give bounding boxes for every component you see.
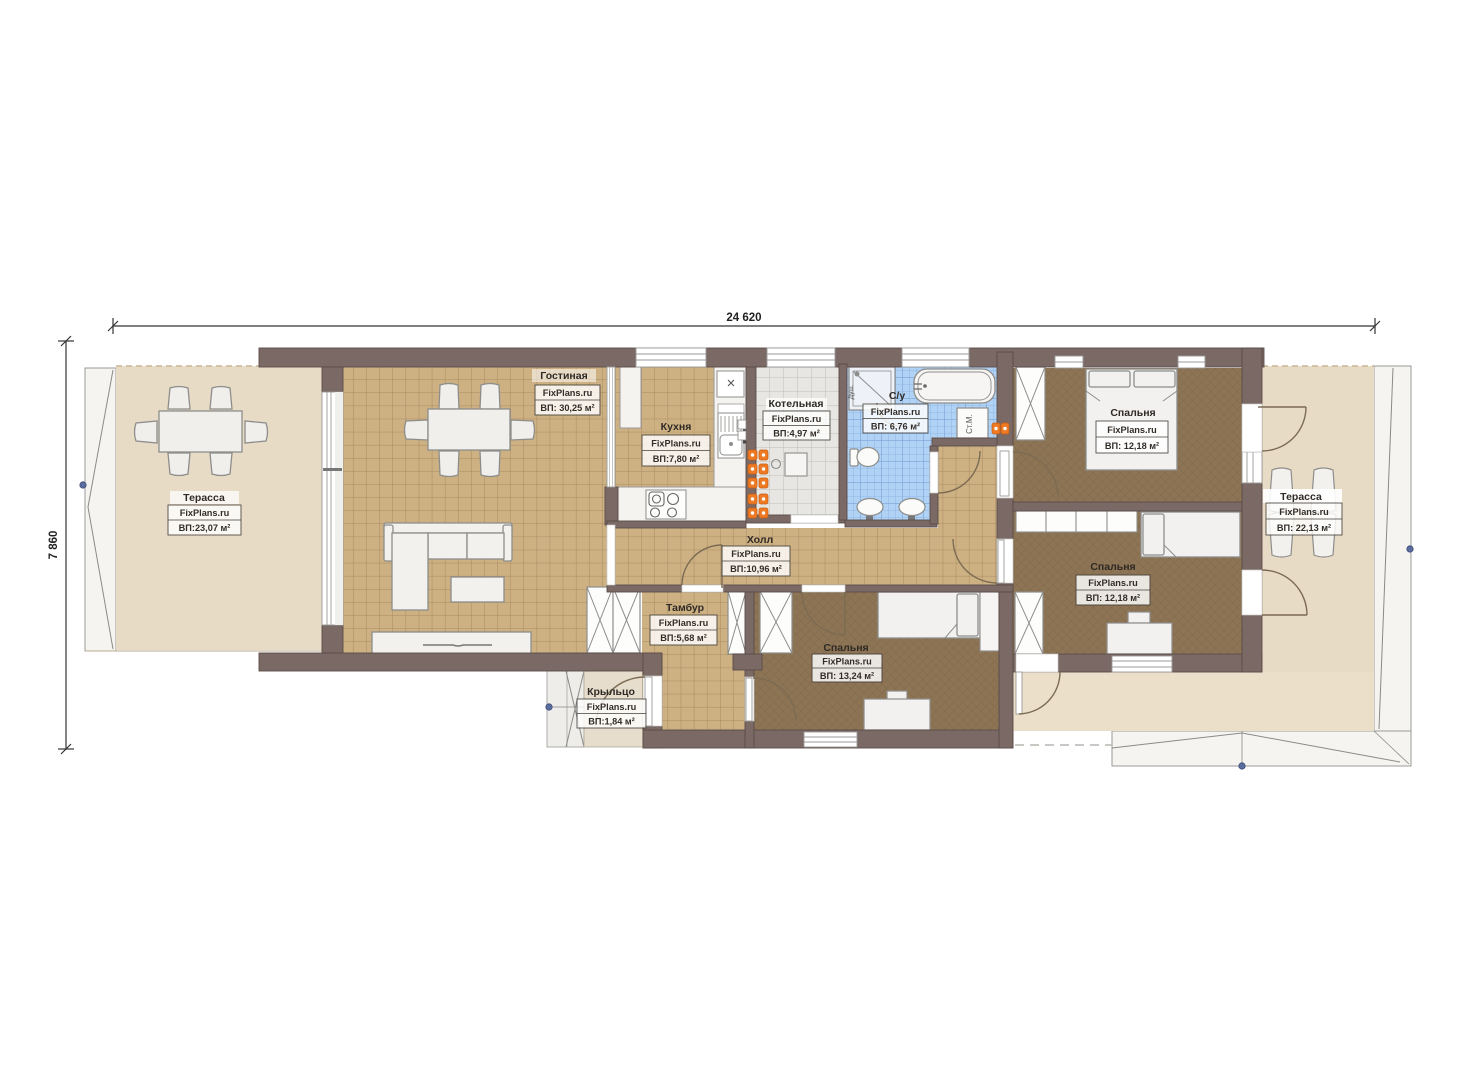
svg-text:FixPlans.ru: FixPlans.ru	[180, 508, 230, 518]
svg-text:Тамбур: Тамбур	[666, 602, 704, 614]
svg-text:ВП:10,96 м²: ВП:10,96 м²	[730, 564, 782, 574]
svg-text:ВП:7,80 м²: ВП:7,80 м²	[653, 454, 700, 464]
svg-text:Кухня: Кухня	[661, 421, 692, 433]
svg-text:Холл: Холл	[747, 534, 773, 546]
svg-text:Ст.М.: Ст.М.	[965, 414, 974, 434]
svg-text:FixPlans.ru: FixPlans.ru	[871, 407, 921, 417]
svg-text:Терасса: Терасса	[183, 492, 225, 504]
svg-text:ВП:23,07 м²: ВП:23,07 м²	[179, 523, 231, 533]
svg-text:Котельная: Котельная	[769, 398, 824, 410]
svg-text:Спальня: Спальня	[1110, 407, 1155, 419]
svg-text:7 860: 7 860	[48, 531, 60, 560]
svg-text:FixPlans.ru: FixPlans.ru	[772, 414, 822, 424]
svg-text:Терасса: Терасса	[1280, 491, 1322, 503]
svg-text:FixPlans.ru: FixPlans.ru	[1088, 578, 1138, 588]
svg-text:ВП: 6,76 м²: ВП: 6,76 м²	[871, 422, 920, 432]
svg-text:Душ.: Душ.	[848, 384, 855, 399]
svg-text:FixPlans.ru: FixPlans.ru	[731, 549, 781, 559]
svg-text:Спальня: Спальня	[1090, 561, 1135, 573]
svg-text:ВП: 30,25 м²: ВП: 30,25 м²	[540, 403, 594, 413]
svg-text:FixPlans.ru: FixPlans.ru	[543, 388, 593, 398]
svg-text:ВП:1,84 м²: ВП:1,84 м²	[588, 717, 635, 727]
svg-text:FixPlans.ru: FixPlans.ru	[651, 439, 701, 449]
svg-text:ВП: 12,18 м²: ВП: 12,18 м²	[1105, 441, 1159, 451]
svg-text:FixPlans.ru: FixPlans.ru	[659, 618, 709, 628]
svg-text:ВП: 22,13 м²: ВП: 22,13 м²	[1277, 523, 1331, 533]
svg-text:FixPlans.ru: FixPlans.ru	[587, 702, 637, 712]
svg-text:Гостиная: Гостиная	[540, 370, 587, 382]
svg-text:ВП:4,97 м²: ВП:4,97 м²	[773, 429, 820, 439]
svg-text:ВП: 13,24 м²: ВП: 13,24 м²	[820, 671, 874, 681]
svg-text:FixPlans.ru: FixPlans.ru	[1279, 507, 1329, 517]
svg-text:С/у: С/у	[889, 390, 906, 402]
svg-text:ВП: 12,18 м²: ВП: 12,18 м²	[1086, 593, 1140, 603]
svg-text:FixPlans.ru: FixPlans.ru	[822, 657, 872, 667]
svg-text:Крыльцо: Крыльцо	[587, 686, 635, 698]
svg-text:FixPlans.ru: FixPlans.ru	[1107, 425, 1157, 435]
svg-text:Спальня: Спальня	[823, 642, 868, 654]
svg-text:ВП:5,68 м²: ВП:5,68 м²	[660, 633, 707, 643]
svg-text:24 620: 24 620	[726, 312, 761, 324]
